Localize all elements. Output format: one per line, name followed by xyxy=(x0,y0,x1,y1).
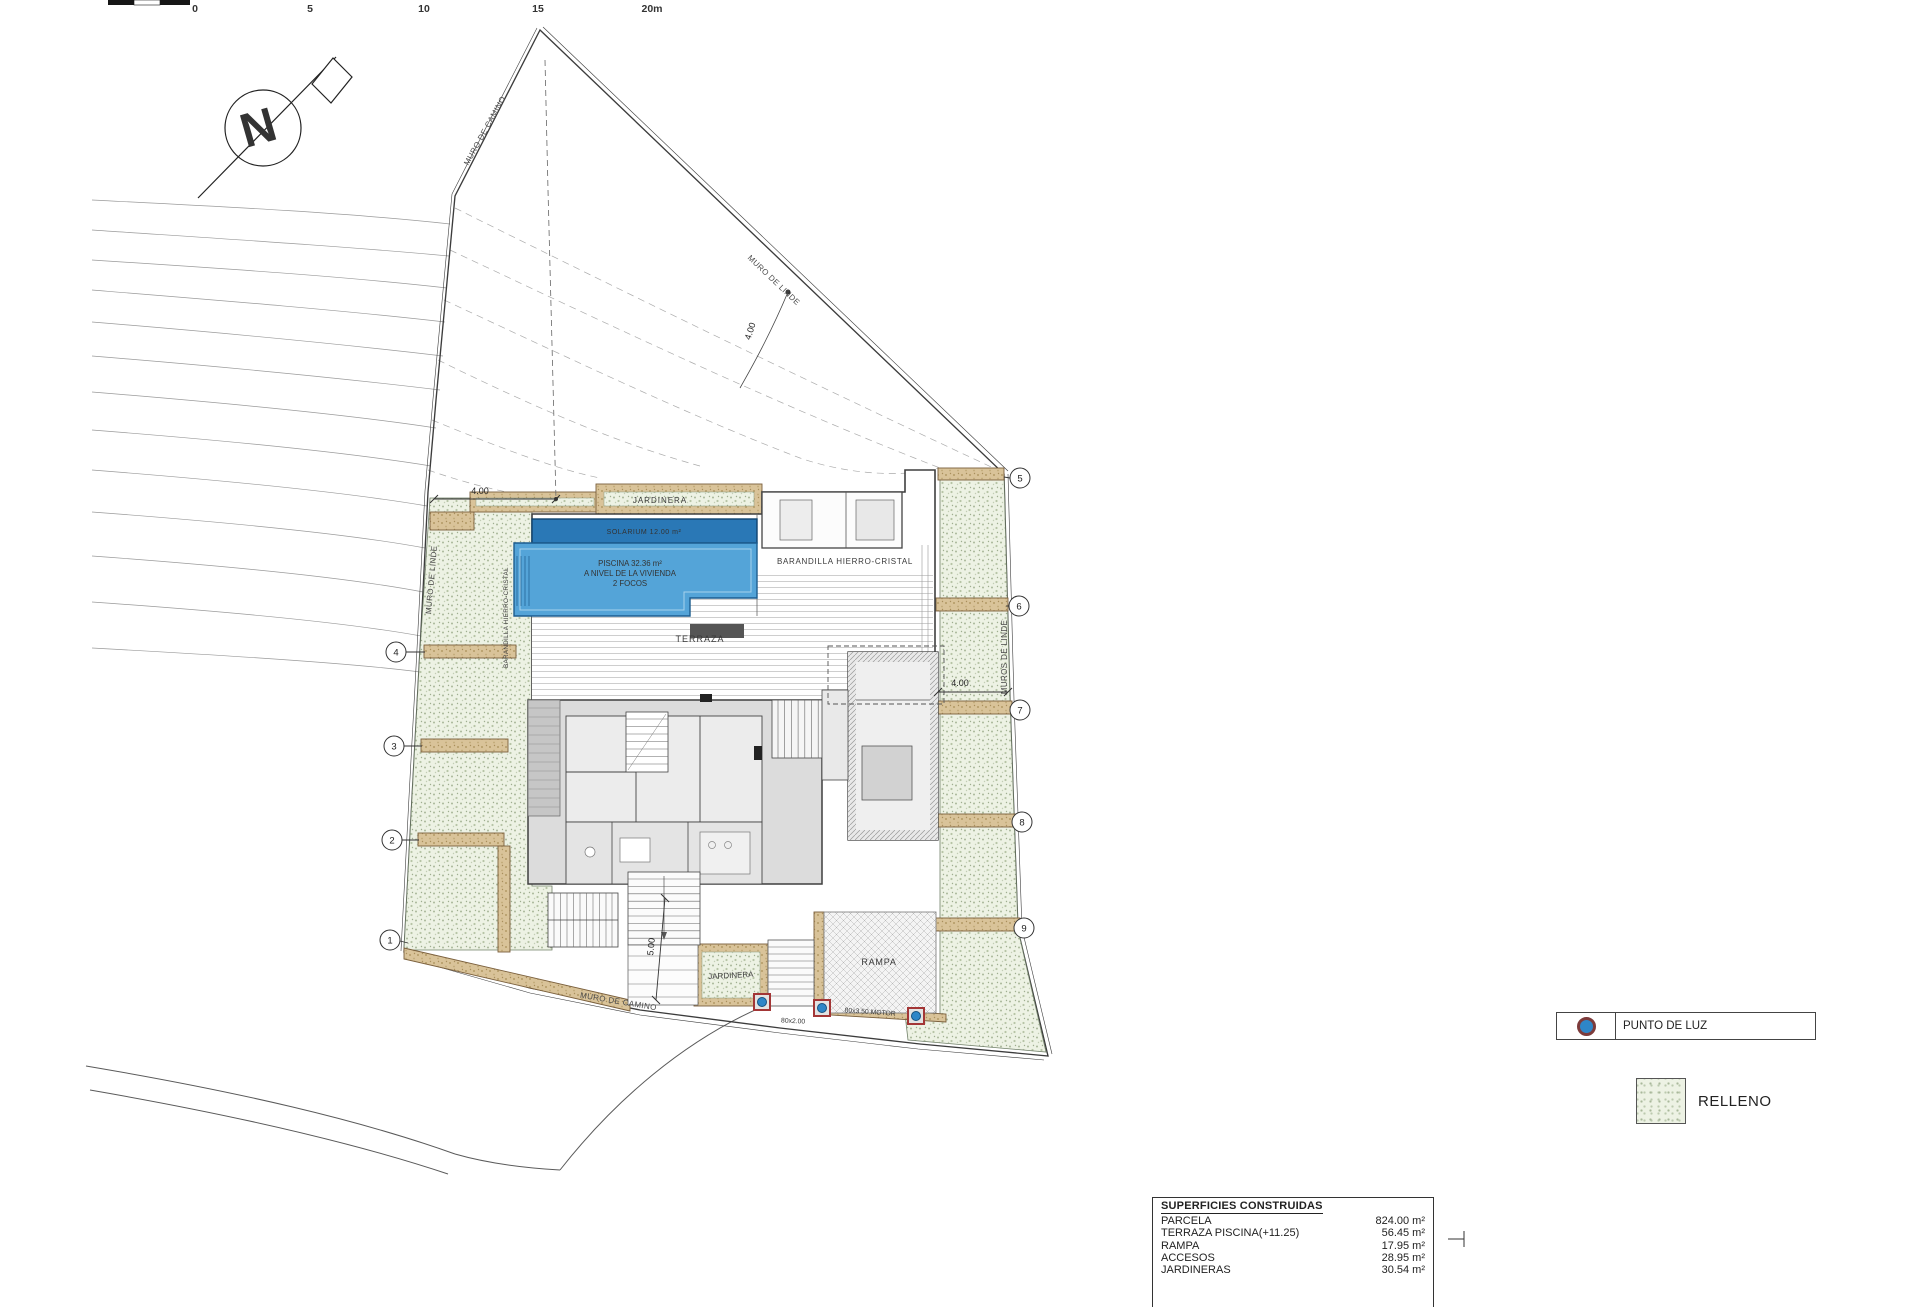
surfaces-table-title: SUPERFICIES CONSTRUIDAS xyxy=(1161,1200,1323,1214)
table-row: TERRAZA PISCINA(+11.25) 56.45 m² xyxy=(1161,1227,1425,1239)
scale-bar: 0 5 10 15 20m xyxy=(108,0,663,15)
row-value: 824.00 m² xyxy=(1375,1215,1425,1227)
north-letter: N xyxy=(234,98,282,159)
scale-tick-20m: 20m xyxy=(641,3,662,15)
scale-tick-0: 0 xyxy=(192,3,198,15)
legend-relleno-label: RELLENO xyxy=(1698,1093,1772,1110)
scale-tick-15: 15 xyxy=(532,3,544,15)
legend-punto-de-luz-label: PUNTO DE LUZ xyxy=(1616,1013,1815,1039)
marker-5: 5 xyxy=(1017,474,1022,485)
dim-bottom: 5.00 xyxy=(645,937,657,955)
row-label: TERRAZA PISCINA(+11.25) xyxy=(1161,1227,1299,1239)
legend-relleno: RELLENO xyxy=(1636,1078,1772,1124)
dim-top: 4.00 xyxy=(743,321,758,341)
dim-left: 4.00 xyxy=(471,486,489,496)
row-label: RAMPA xyxy=(1161,1240,1199,1252)
table-row: PARCELA 824.00 m² xyxy=(1161,1215,1425,1227)
north-arrow: N xyxy=(198,57,352,198)
marker-1: 1 xyxy=(387,936,392,947)
row-label: PARCELA xyxy=(1161,1215,1212,1227)
table-row: RAMPA 17.95 m² xyxy=(1161,1240,1425,1252)
barandilla-top-label: BARANDILLA HIERRO-CRISTAL xyxy=(777,557,913,566)
barandilla-left-label: BARANDILLA HIERRO-CRISTAL xyxy=(503,567,510,668)
site-plan-drawing: JARDINERA SOLARIUM 12.00 m² PISCINA 32.3… xyxy=(0,0,1920,1280)
scale-tick-5: 5 xyxy=(307,3,313,15)
muros-linde-right-label: MUROS DE LINDE xyxy=(1000,620,1009,695)
table-row: ACCESOS 28.95 m² xyxy=(1161,1252,1425,1264)
muro-camino-top-label: MURO DE CAMINO xyxy=(462,95,507,167)
row-label: JARDINERAS xyxy=(1161,1264,1231,1276)
terraza-label: TERRAZA xyxy=(675,634,724,644)
surfaces-table: SUPERFICIES CONSTRUIDAS PARCELA 824.00 m… xyxy=(1152,1197,1434,1307)
piscina-label-3: 2 FOCOS xyxy=(613,579,647,588)
light-point-legend-icon xyxy=(1557,1013,1616,1039)
reference-mark xyxy=(1448,1231,1464,1247)
rampa-label: RAMPA xyxy=(861,957,896,967)
jardinera-top-label: JARDINERA xyxy=(633,496,687,505)
piscina-label-1: PISCINA 32.36 m² xyxy=(598,559,662,568)
light-size-label-1: 80x2.00 xyxy=(781,1017,806,1025)
row-value: 30.54 m² xyxy=(1382,1264,1425,1276)
marker-4: 4 xyxy=(393,648,398,659)
marker-6: 6 xyxy=(1016,602,1021,613)
row-value: 17.95 m² xyxy=(1382,1240,1425,1252)
marker-9: 9 xyxy=(1021,924,1026,935)
scale-tick-10: 10 xyxy=(418,3,430,15)
row-value: 56.45 m² xyxy=(1382,1227,1425,1239)
marker-2: 2 xyxy=(389,836,394,847)
table-row: JARDINERAS 30.54 m² xyxy=(1161,1264,1425,1276)
piscina-label-2: A NIVEL DE LA VIVIENDA xyxy=(584,569,677,578)
relleno-swatch-icon xyxy=(1636,1078,1686,1124)
row-label: ACCESOS xyxy=(1161,1252,1215,1264)
light-point-icon xyxy=(814,1000,830,1016)
marker-3: 3 xyxy=(391,742,396,753)
marker-8: 8 xyxy=(1019,818,1024,829)
solarium-label: SOLARIUM 12.00 m² xyxy=(607,529,682,536)
light-point-icon xyxy=(908,1008,924,1024)
muro-linde-top-label: MURO DE LINDE xyxy=(746,253,802,307)
light-point-icon xyxy=(754,994,770,1010)
marker-7: 7 xyxy=(1017,706,1022,717)
row-value: 28.95 m² xyxy=(1382,1252,1425,1264)
dim-right: 4.00 xyxy=(951,678,969,688)
legend-punto-de-luz: PUNTO DE LUZ xyxy=(1556,1012,1816,1040)
